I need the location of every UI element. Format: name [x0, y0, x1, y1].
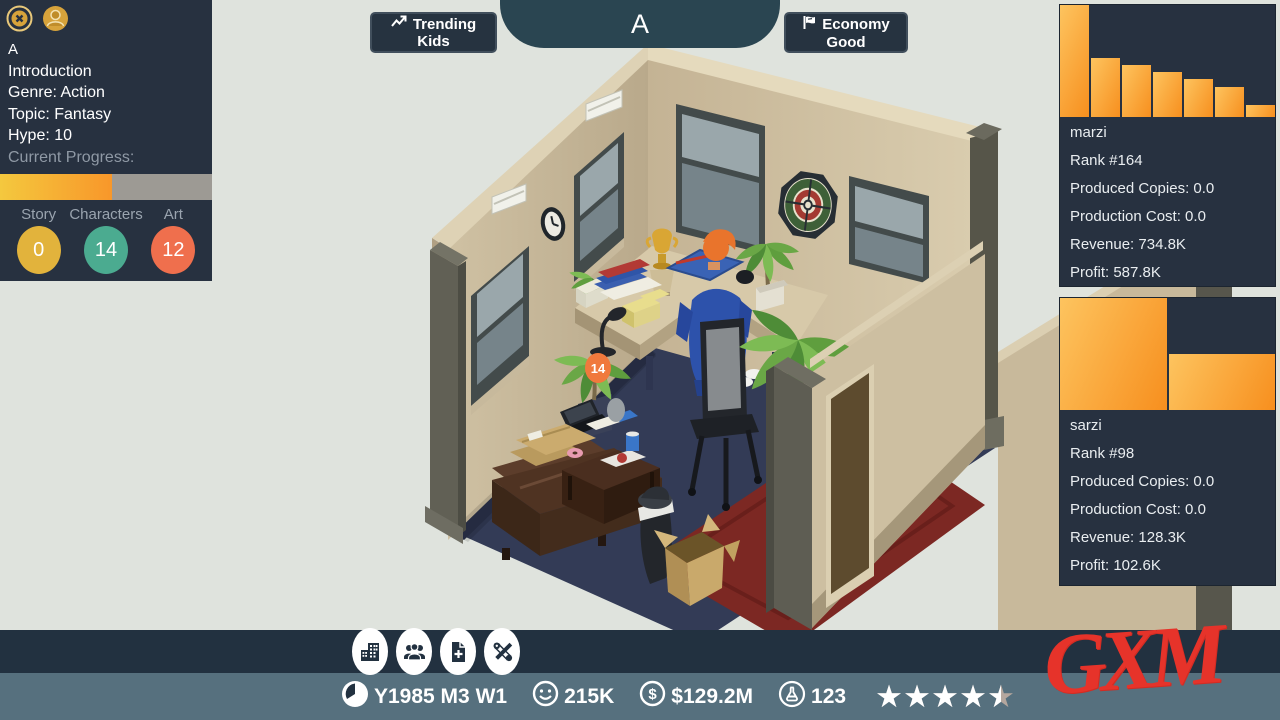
- sales-bar: [1215, 87, 1244, 117]
- sales-chart-marzi: [1060, 5, 1275, 117]
- stat-circle-art: 12: [151, 226, 195, 274]
- studio-name-pill[interactable]: A: [500, 0, 780, 48]
- settings-button[interactable]: [484, 628, 520, 675]
- trending-label-line2: Kids: [391, 33, 476, 50]
- game-screen: 14 A Introduction Genr: [0, 0, 1280, 720]
- stat-label-characters: Characters: [69, 206, 142, 223]
- project-topic: Topic: Fantasy: [8, 104, 204, 126]
- wall-column: [425, 242, 468, 544]
- smiley-icon: [532, 680, 559, 713]
- sales-profit: Profit: 102.6K: [1070, 552, 1265, 580]
- tools-icon: [491, 640, 514, 663]
- star-icon: ★★: [987, 680, 1015, 714]
- economy-button[interactable]: Economy Good: [784, 12, 908, 53]
- sales-revenue: Revenue: 128.3K: [1070, 524, 1265, 552]
- gxm-watermark: GXM: [1040, 598, 1222, 720]
- file-plus-icon: [448, 641, 468, 663]
- sales-bar: [1122, 65, 1151, 117]
- star-icon: ★★: [931, 680, 959, 714]
- studio-name: A: [631, 9, 649, 40]
- star-icon: ★★: [959, 680, 987, 714]
- staff-button[interactable]: [396, 628, 432, 675]
- new-project-button[interactable]: [440, 628, 476, 675]
- flask-icon: [778, 680, 806, 714]
- trending-button[interactable]: Trending Kids: [370, 12, 497, 53]
- svg-text:$: $: [649, 686, 658, 703]
- project-info-panel: A Introduction Genre: Action Topic: Fant…: [0, 0, 212, 281]
- research-display: 123: [778, 680, 846, 714]
- money-display: $ $129.2M: [639, 680, 753, 713]
- stat-circle-story: 0: [17, 226, 61, 274]
- sales-bar: [1060, 298, 1167, 410]
- sales-cost: Production Cost: 0.0: [1070, 496, 1265, 524]
- star-icon: ★★: [875, 680, 903, 714]
- economy-label-line1: Economy: [822, 16, 890, 33]
- trending-up-icon: [391, 15, 408, 33]
- project-title: A: [8, 39, 204, 61]
- sales-name: sarzi: [1070, 412, 1265, 440]
- stat-label-art: Art: [143, 206, 204, 223]
- stat-circle-characters: 14: [84, 226, 128, 274]
- sales-bar: [1153, 72, 1182, 117]
- buildings-button[interactable]: [352, 628, 388, 675]
- progress-fill: [0, 174, 112, 200]
- clock-icon: [341, 680, 369, 714]
- sales-bar: [1060, 5, 1089, 117]
- svg-text:14: 14: [591, 361, 606, 376]
- sales-rank: Rank #98: [1070, 440, 1265, 468]
- sales-produced: Produced Copies: 0.0: [1070, 468, 1265, 496]
- trending-label-line1: Trending: [413, 16, 476, 33]
- sales-name: marzi: [1070, 119, 1265, 147]
- project-hype: Hype: 10: [8, 125, 204, 147]
- sales-revenue: Revenue: 734.8K: [1070, 231, 1265, 259]
- sales-bar: [1091, 58, 1120, 117]
- fans-display: 215K: [532, 680, 614, 713]
- sales-panel-marzi[interactable]: marzi Rank #164 Produced Copies: 0.0 Pro…: [1060, 5, 1275, 286]
- progress-bar: [0, 174, 212, 200]
- progress-label: Current Progress:: [8, 147, 204, 169]
- sales-cost: Production Cost: 0.0: [1070, 203, 1265, 231]
- sales-chart-sarzi: [1060, 298, 1275, 410]
- building-icon: [359, 641, 381, 663]
- cancel-project-icon[interactable]: [6, 5, 33, 37]
- assigned-staff-icon[interactable]: [42, 5, 69, 37]
- sales-produced: Produced Copies: 0.0: [1070, 175, 1265, 203]
- dollar-icon: $: [639, 680, 666, 713]
- rating-stars: ★★★★★★★★★★: [875, 680, 1015, 714]
- sales-profit: Profit: 587.8K: [1070, 259, 1265, 287]
- sales-rank: Rank #164: [1070, 147, 1265, 175]
- people-icon: [403, 641, 426, 663]
- stat-label-story: Story: [8, 206, 69, 223]
- date-display: Y1985 M3 W1: [341, 680, 507, 714]
- sales-bar: [1169, 354, 1276, 410]
- plant-level-badge: 14: [585, 353, 611, 383]
- sales-bar: [1184, 79, 1213, 117]
- sales-bar: [1246, 105, 1275, 117]
- economy-flag-icon: [802, 15, 817, 34]
- sales-panel-sarzi[interactable]: sarzi Rank #98 Produced Copies: 0.0 Prod…: [1060, 298, 1275, 585]
- economy-label-line2: Good: [802, 34, 890, 51]
- project-genre: Genre: Action: [8, 82, 204, 104]
- star-icon: ★★: [903, 680, 931, 714]
- project-stage: Introduction: [8, 61, 204, 83]
- toolbar: [352, 628, 520, 675]
- door: [826, 364, 874, 608]
